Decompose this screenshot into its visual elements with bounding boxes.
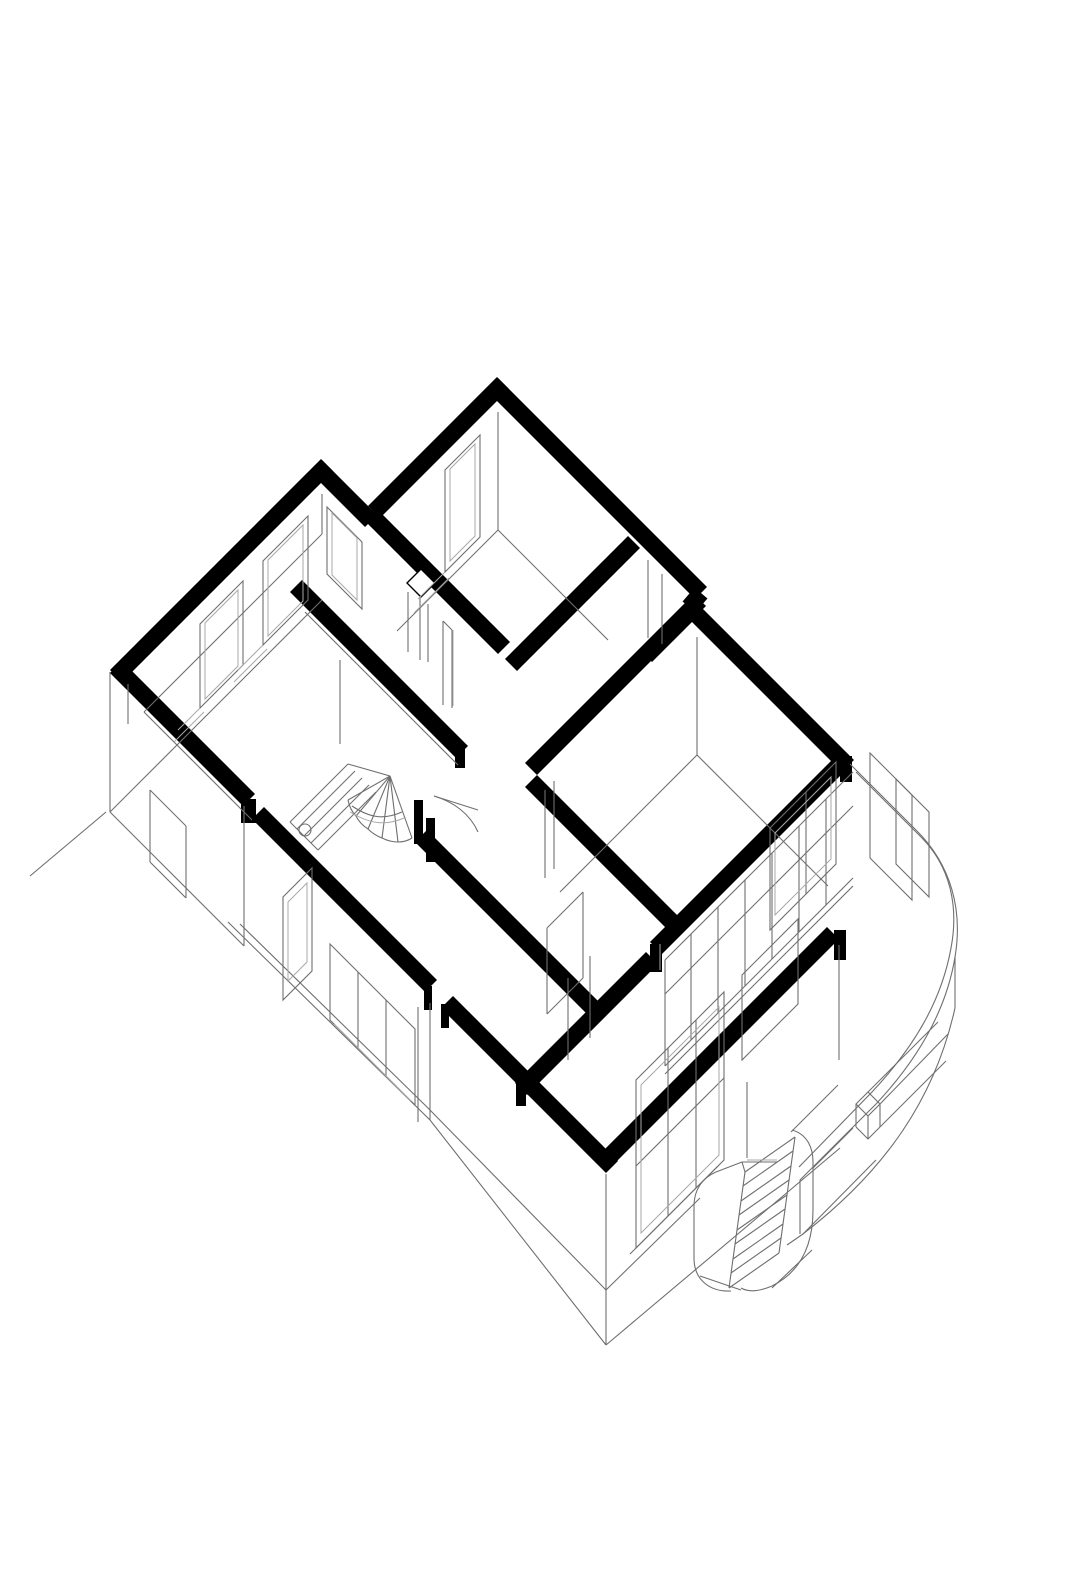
winder-stair-path — [348, 776, 390, 800]
exterior-stair-path — [742, 1162, 745, 1172]
cut-walls-path — [511, 542, 634, 665]
interior-lines-path — [263, 516, 308, 645]
cut-walls-path — [258, 813, 431, 986]
interior-lines-path — [547, 892, 583, 928]
winder-stair-path — [348, 764, 390, 776]
terrace-parapet-path — [787, 1008, 955, 1245]
cut-walls-path — [521, 958, 652, 1089]
exterior-stair-path — [772, 1210, 813, 1286]
cut-walls-path — [116, 465, 327, 676]
winder-stair-path — [348, 800, 412, 842]
terrace-parapet-path — [870, 753, 912, 900]
terrace-parapet-path — [856, 772, 921, 837]
exterior-stair-path — [779, 1137, 795, 1253]
winder-stair-path — [311, 785, 369, 843]
facade-lines-path — [150, 790, 186, 826]
cut-walls-layer — [116, 383, 848, 1167]
house-axonometric-drawing — [0, 0, 1080, 1594]
inner-frames-sills-path — [205, 590, 238, 699]
terrace-parapet-path — [803, 1160, 876, 1234]
terrace-parapet-path — [850, 764, 917, 831]
interior-lines-path — [305, 612, 458, 765]
wall-end-faces-path — [426, 818, 435, 862]
axonometric-drawing-page — [0, 0, 1080, 1594]
exterior-stair-path — [694, 1258, 731, 1291]
cut-walls-path — [421, 836, 597, 1012]
interior-lines-path — [434, 796, 478, 832]
winder-stair-layer — [290, 764, 412, 850]
facade-lines-path — [150, 862, 186, 898]
interior-lines-layer — [128, 412, 828, 1060]
winder-stair-path — [297, 771, 355, 829]
exterior-stair-path — [791, 1085, 838, 1132]
winder-stair-path — [318, 792, 376, 850]
wall-end-faces-path — [834, 930, 846, 960]
terrace-parapet-path — [868, 1022, 938, 1092]
wall-end-faces-path — [840, 756, 852, 782]
cut-walls-path — [492, 384, 701, 593]
cut-walls-path — [689, 607, 848, 766]
interior-lines-path — [200, 581, 243, 708]
wall-end-faces-path — [441, 1004, 449, 1028]
cut-walls-path — [656, 758, 846, 948]
winder-stair-path — [299, 824, 311, 836]
wall-end-faces-path — [455, 744, 465, 768]
winder-stair-path — [356, 776, 390, 816]
wall-end-faces-path — [516, 1084, 526, 1106]
facade-lines-path — [30, 812, 106, 876]
facade-lines-path — [110, 812, 244, 946]
cut-walls-path — [374, 383, 503, 512]
exterior-stair-path — [772, 1250, 812, 1288]
exterior-stair-path — [813, 1128, 853, 1168]
wall-end-faces-path — [424, 986, 432, 1010]
exterior-stair-path — [792, 1130, 813, 1162]
cut-walls-path — [296, 586, 462, 752]
inner-frames-sills-path — [334, 1024, 411, 1101]
interior-lines-path — [434, 796, 478, 810]
inner-frames-sills-path — [332, 513, 357, 600]
interior-lines-path — [443, 621, 452, 630]
exterior-stair-layer — [694, 1085, 853, 1291]
inner-frames-sills-path — [288, 883, 307, 981]
facade-lines-path — [228, 922, 606, 1345]
cut-walls-path — [646, 605, 697, 656]
interior-lines-path — [697, 755, 828, 886]
winder-stair-path — [290, 764, 348, 822]
interior-lines-path — [144, 712, 252, 820]
wall-end-faces-path — [414, 800, 423, 844]
exterior-stair-path — [729, 1253, 779, 1288]
inner-frames-sills-path — [234, 649, 267, 682]
exterior-stair-path — [700, 1276, 741, 1290]
facade-lines-path — [606, 1198, 700, 1290]
exterior-stair-path — [741, 1286, 772, 1291]
terrace-parapet-path — [799, 837, 954, 1167]
inner-frames-sills-path — [238, 645, 263, 670]
inner-frames-sills-path — [268, 525, 303, 636]
facade-lines-path — [110, 600, 322, 812]
